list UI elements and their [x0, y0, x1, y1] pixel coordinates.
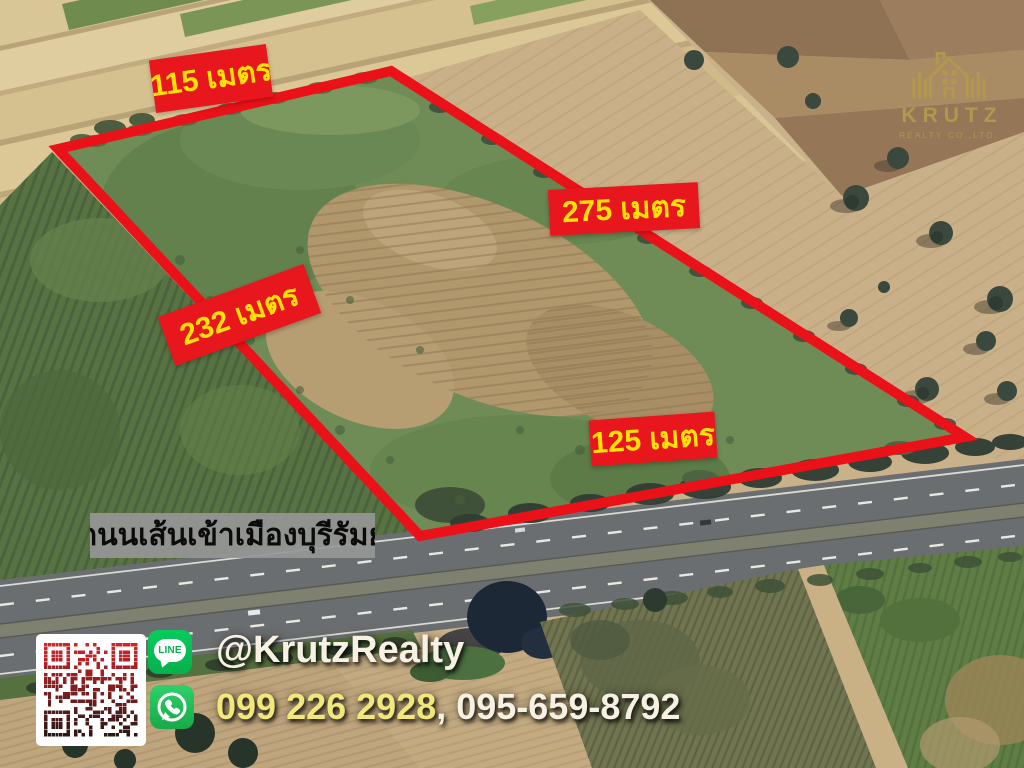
line-bubble: LINE [154, 639, 186, 662]
phone-primary: 099 226 2928 [216, 686, 436, 727]
line-handle-text: @KrutzRealty [216, 629, 464, 672]
logo-company-name: KRUTZ [893, 104, 1005, 128]
logo-house-icon [907, 40, 991, 102]
phone-numbers-text: 099 226 2928, 095-659-8792 [216, 686, 680, 728]
dimension-label-bottom: 125 เมตร [589, 412, 718, 467]
dimension-text-bottom: 125 เมตร [589, 412, 716, 467]
line-icon: LINE [148, 630, 192, 674]
phone-icon [155, 690, 189, 724]
road-name-text: ถนนเส้นเข้าเมืองบุรีรัมย์ [90, 513, 375, 558]
phone-secondary: 095-659-8792 [456, 686, 680, 727]
whatsapp-icon [150, 685, 194, 729]
dimension-label-right: 275 เมตร [548, 182, 700, 236]
logo-subtitle: REALTY CO.,LTD. [893, 130, 1005, 140]
qr-code [36, 634, 146, 746]
qr-pattern [44, 642, 138, 738]
road-name-label: ถนนเส้นเข้าเมืองบุรีรัมย์ [90, 513, 375, 558]
land-listing-image: 115 เมตร 275 เมตร 232 เมตร 125 เมตร ถนนเ… [0, 0, 1024, 768]
phone-separator: , [436, 686, 456, 727]
line-bubble-text: LINE [158, 645, 182, 656]
dimension-text-right: 275 เมตร [561, 182, 687, 235]
krutz-logo: KRUTZ REALTY CO.,LTD. [893, 40, 1005, 140]
